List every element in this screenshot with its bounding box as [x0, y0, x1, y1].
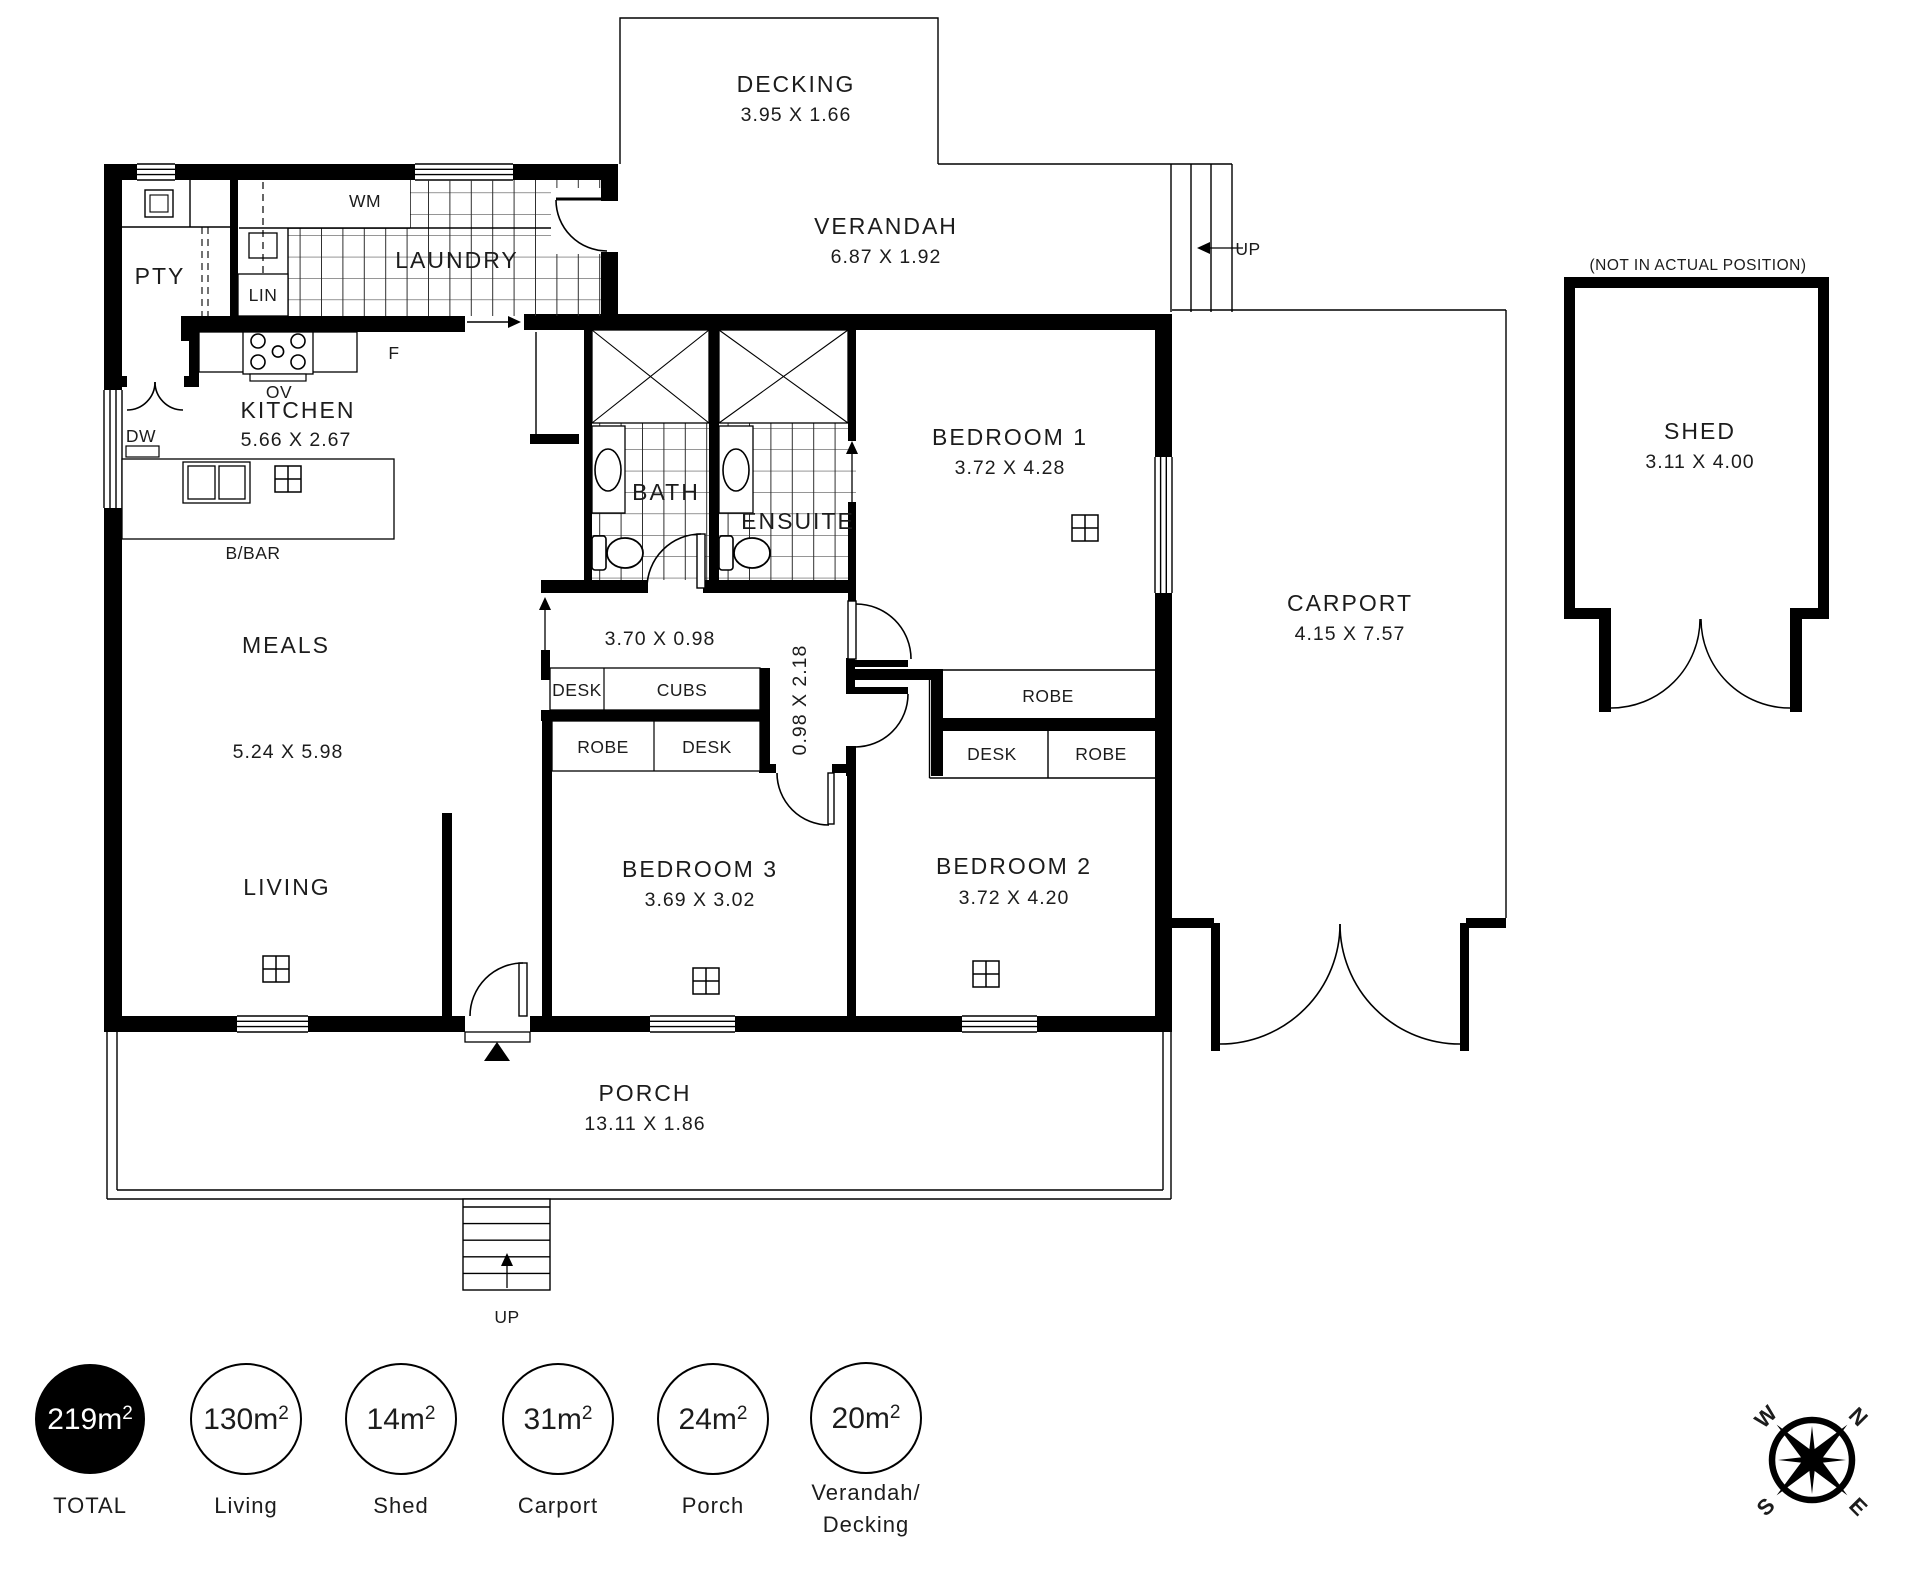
svg-text:WM: WM — [349, 191, 381, 211]
svg-text:130m2: 130m2 — [203, 1403, 289, 1436]
svg-text:BEDROOM 2: BEDROOM 2 — [936, 853, 1092, 879]
svg-text:UP: UP — [1235, 239, 1260, 259]
svg-text:DESK: DESK — [967, 744, 1017, 764]
svg-text:F: F — [388, 343, 399, 363]
svg-text:BATH: BATH — [632, 479, 700, 505]
svg-text:MEALS: MEALS — [242, 632, 330, 658]
svg-text:3.69 X 3.02: 3.69 X 3.02 — [645, 889, 756, 911]
svg-text:BEDROOM 1: BEDROOM 1 — [932, 424, 1088, 450]
svg-text:5.24 X 5.98: 5.24 X 5.98 — [233, 741, 344, 763]
svg-text:ROBE: ROBE — [577, 737, 629, 757]
svg-text:B/BAR: B/BAR — [225, 543, 280, 563]
svg-text:LIN: LIN — [249, 285, 278, 305]
svg-text:Verandah/: Verandah/ — [811, 1480, 920, 1505]
svg-text:DESK: DESK — [682, 737, 732, 757]
svg-text:219m2: 219m2 — [47, 1403, 133, 1436]
svg-text:0.98 X 2.18: 0.98 X 2.18 — [789, 645, 811, 756]
svg-text:(NOT IN ACTUAL POSITION): (NOT IN ACTUAL POSITION) — [1590, 257, 1807, 274]
svg-text:DECKING: DECKING — [737, 71, 856, 97]
svg-text:3.95 X 1.66: 3.95 X 1.66 — [741, 104, 852, 126]
svg-text:LAUNDRY: LAUNDRY — [395, 247, 519, 273]
svg-text:13.11 X 1.86: 13.11 X 1.86 — [584, 1113, 705, 1135]
svg-text:VERANDAH: VERANDAH — [814, 213, 958, 239]
svg-text:Carport: Carport — [518, 1493, 598, 1518]
svg-text:TOTAL: TOTAL — [53, 1493, 127, 1518]
svg-text:Shed: Shed — [373, 1493, 428, 1518]
svg-text:5.66 X 2.67: 5.66 X 2.67 — [241, 429, 352, 451]
svg-text:3.11 X 4.00: 3.11 X 4.00 — [1645, 451, 1754, 473]
svg-text:ROBE: ROBE — [1022, 686, 1074, 706]
svg-text:OV: OV — [266, 382, 292, 402]
svg-text:PORCH: PORCH — [598, 1080, 691, 1106]
svg-text:LIVING: LIVING — [243, 874, 330, 900]
svg-text:3.70 X 0.98: 3.70 X 0.98 — [605, 628, 716, 650]
svg-text:KITCHEN: KITCHEN — [241, 397, 356, 423]
svg-text:ROBE: ROBE — [1075, 744, 1127, 764]
svg-text:DESK: DESK — [552, 680, 602, 700]
svg-text:4.15 X 7.57: 4.15 X 7.57 — [1295, 623, 1406, 645]
svg-text:3.72 X 4.28: 3.72 X 4.28 — [955, 457, 1066, 479]
svg-text:3.72 X 4.20: 3.72 X 4.20 — [959, 887, 1070, 909]
svg-text:PTY: PTY — [135, 263, 186, 289]
svg-text:SHED: SHED — [1664, 418, 1736, 444]
svg-text:CUBS: CUBS — [657, 680, 708, 700]
svg-text:ENSUITE: ENSUITE — [741, 508, 855, 534]
svg-text:BEDROOM 3: BEDROOM 3 — [622, 856, 778, 882]
svg-text:Porch: Porch — [682, 1493, 744, 1518]
svg-text:Decking: Decking — [823, 1512, 909, 1537]
svg-text:DW: DW — [126, 426, 156, 446]
svg-text:UP: UP — [494, 1307, 519, 1327]
svg-text:Living: Living — [214, 1493, 277, 1518]
svg-text:CARPORT: CARPORT — [1287, 590, 1413, 616]
svg-text:6.87 X 1.92: 6.87 X 1.92 — [831, 246, 942, 268]
